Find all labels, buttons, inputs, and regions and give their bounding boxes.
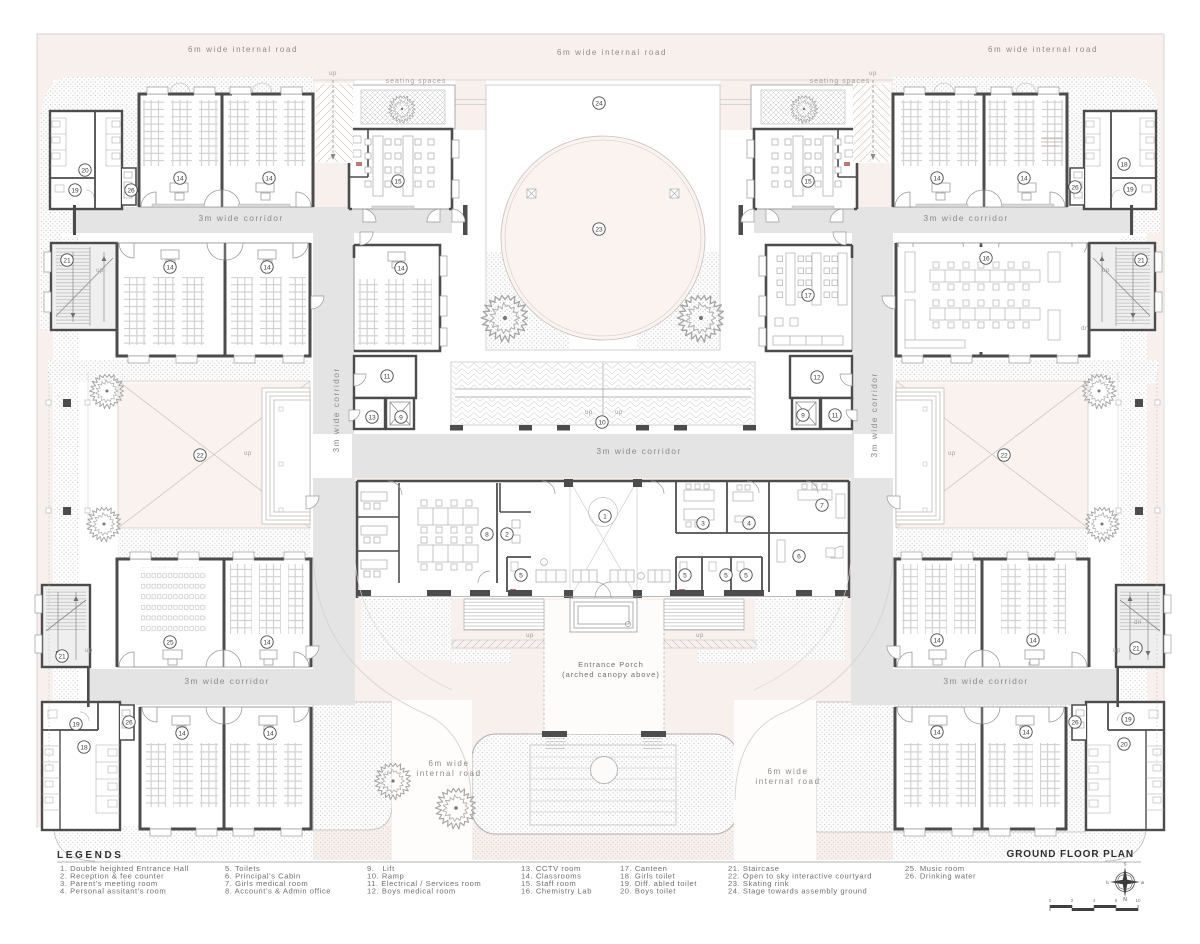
svg-text:3m wide corridor: 3m wide corridor xyxy=(923,213,1008,223)
svg-text:8. Account's & Admin office: 8. Account's & Admin office xyxy=(225,887,331,896)
svg-text:14: 14 xyxy=(176,175,184,182)
svg-text:5: 5 xyxy=(744,572,748,579)
svg-text:19: 19 xyxy=(72,721,80,728)
svg-text:4: 4 xyxy=(747,520,751,527)
svg-text:dn: dn xyxy=(1134,620,1142,626)
svg-text:N: N xyxy=(1123,897,1127,903)
svg-text:5: 5 xyxy=(519,572,523,579)
svg-text:6m wide internal road: 6m wide internal road xyxy=(188,45,298,54)
svg-text:26: 26 xyxy=(1071,719,1079,726)
svg-text:14: 14 xyxy=(1022,729,1030,736)
svg-text:6m wide internal road: 6m wide internal road xyxy=(557,48,667,57)
svg-text:25: 25 xyxy=(166,639,174,646)
svg-text:20: 20 xyxy=(1120,741,1128,748)
svg-text:6m wide: 6m wide xyxy=(768,767,809,776)
svg-text:6m wide internal road: 6m wide internal road xyxy=(988,45,1098,54)
svg-text:S: S xyxy=(1123,862,1126,867)
svg-text:4. Personal assitant's room: 4. Personal assitant's room xyxy=(60,887,166,896)
svg-text:22: 22 xyxy=(1000,452,1008,459)
svg-text:up: up xyxy=(329,71,337,77)
svg-text:21: 21 xyxy=(1132,645,1140,652)
svg-text:11: 11 xyxy=(384,373,391,380)
svg-text:13: 13 xyxy=(368,414,376,421)
svg-text:20: 20 xyxy=(81,167,89,174)
svg-text:23: 23 xyxy=(595,226,603,233)
svg-text:3m wide corridor: 3m wide corridor xyxy=(869,372,879,457)
svg-text:26: 26 xyxy=(1071,184,1079,191)
svg-text:19: 19 xyxy=(71,187,79,194)
svg-text:LEGENDS: LEGENDS xyxy=(57,850,124,861)
svg-text:17: 17 xyxy=(804,292,812,299)
svg-text:20. Boys toilet: 20. Boys toilet xyxy=(620,887,676,896)
svg-text:internal road: internal road xyxy=(755,777,820,786)
svg-text:19: 19 xyxy=(1126,186,1134,193)
svg-text:1: 1 xyxy=(603,513,607,520)
svg-text:2: 2 xyxy=(505,531,509,538)
svg-text:26: 26 xyxy=(125,719,133,726)
svg-text:internal road: internal road xyxy=(416,769,481,778)
svg-text:Entrance Porch: Entrance Porch xyxy=(578,660,644,669)
svg-text:10: 10 xyxy=(1135,898,1141,903)
svg-text:11: 11 xyxy=(832,412,839,419)
svg-text:10: 10 xyxy=(598,419,606,426)
svg-text:3: 3 xyxy=(701,520,705,527)
svg-text:24. Stage towards assembly gro: 24. Stage towards assembly ground xyxy=(728,887,867,896)
svg-text:14: 14 xyxy=(266,730,274,737)
svg-text:up: up xyxy=(96,268,104,274)
svg-text:15: 15 xyxy=(804,178,812,185)
svg-text:18: 18 xyxy=(1120,161,1128,168)
svg-text:22: 22 xyxy=(196,452,204,459)
svg-text:up: up xyxy=(696,633,704,639)
svg-text:7: 7 xyxy=(820,502,824,509)
svg-text:14: 14 xyxy=(397,265,405,272)
svg-text:21: 21 xyxy=(58,653,66,660)
svg-text:up: up xyxy=(526,633,534,639)
svg-text:12. Boys medical room: 12. Boys medical room xyxy=(367,887,456,896)
svg-text:seating spaces: seating spaces xyxy=(386,78,447,85)
svg-text:21: 21 xyxy=(1137,257,1145,264)
svg-text:14: 14 xyxy=(166,264,174,271)
svg-text:19: 19 xyxy=(1124,716,1132,723)
svg-text:up: up xyxy=(85,648,93,654)
svg-text:24: 24 xyxy=(595,100,603,107)
svg-text:9: 9 xyxy=(399,414,403,421)
svg-text:15: 15 xyxy=(394,178,402,185)
svg-text:5: 5 xyxy=(683,572,687,579)
svg-text:3m wide corridor: 3m wide corridor xyxy=(331,367,341,452)
svg-text:21: 21 xyxy=(63,257,71,264)
svg-text:14: 14 xyxy=(933,637,941,644)
svg-text:14: 14 xyxy=(933,175,941,182)
svg-text:6: 6 xyxy=(797,553,801,560)
svg-text:5: 5 xyxy=(724,572,728,579)
svg-text:up: up xyxy=(244,451,252,457)
svg-text:14: 14 xyxy=(265,175,273,182)
svg-text:3m wide corridor: 3m wide corridor xyxy=(943,676,1028,686)
svg-text:up: up xyxy=(615,410,623,416)
svg-text:(arched canopy above): (arched canopy above) xyxy=(562,670,660,679)
svg-text:14: 14 xyxy=(263,264,271,271)
svg-text:14: 14 xyxy=(263,639,271,646)
svg-text:9: 9 xyxy=(801,412,805,419)
svg-text:dn: dn xyxy=(1081,326,1089,332)
svg-text:8: 8 xyxy=(485,531,489,538)
svg-text:up: up xyxy=(948,451,956,457)
svg-text:16: 16 xyxy=(982,255,990,262)
svg-text:GROUND FLOOR PLAN: GROUND FLOOR PLAN xyxy=(1006,849,1134,860)
svg-text:14: 14 xyxy=(1029,637,1037,644)
svg-text:26: 26 xyxy=(127,187,135,194)
svg-text:3m wide corridor: 3m wide corridor xyxy=(596,446,681,456)
svg-text:26. Drinking water: 26. Drinking water xyxy=(905,872,976,881)
svg-text:up: up xyxy=(1113,648,1121,654)
svg-text:up: up xyxy=(585,410,593,416)
svg-text:up: up xyxy=(869,71,877,77)
svg-text:3m wide corridor: 3m wide corridor xyxy=(184,676,269,686)
svg-text:18: 18 xyxy=(80,744,88,751)
svg-text:seating spaces: seating spaces xyxy=(810,78,871,85)
svg-text:14: 14 xyxy=(178,730,186,737)
svg-text:6m wide: 6m wide xyxy=(429,759,470,768)
svg-text:up: up xyxy=(1102,268,1110,274)
svg-text:14: 14 xyxy=(1020,175,1028,182)
svg-text:16. Chemistry Lab: 16. Chemistry Lab xyxy=(521,887,592,896)
svg-text:12: 12 xyxy=(813,374,821,381)
svg-text:14: 14 xyxy=(933,729,941,736)
svg-text:3m wide corridor: 3m wide corridor xyxy=(198,213,283,223)
